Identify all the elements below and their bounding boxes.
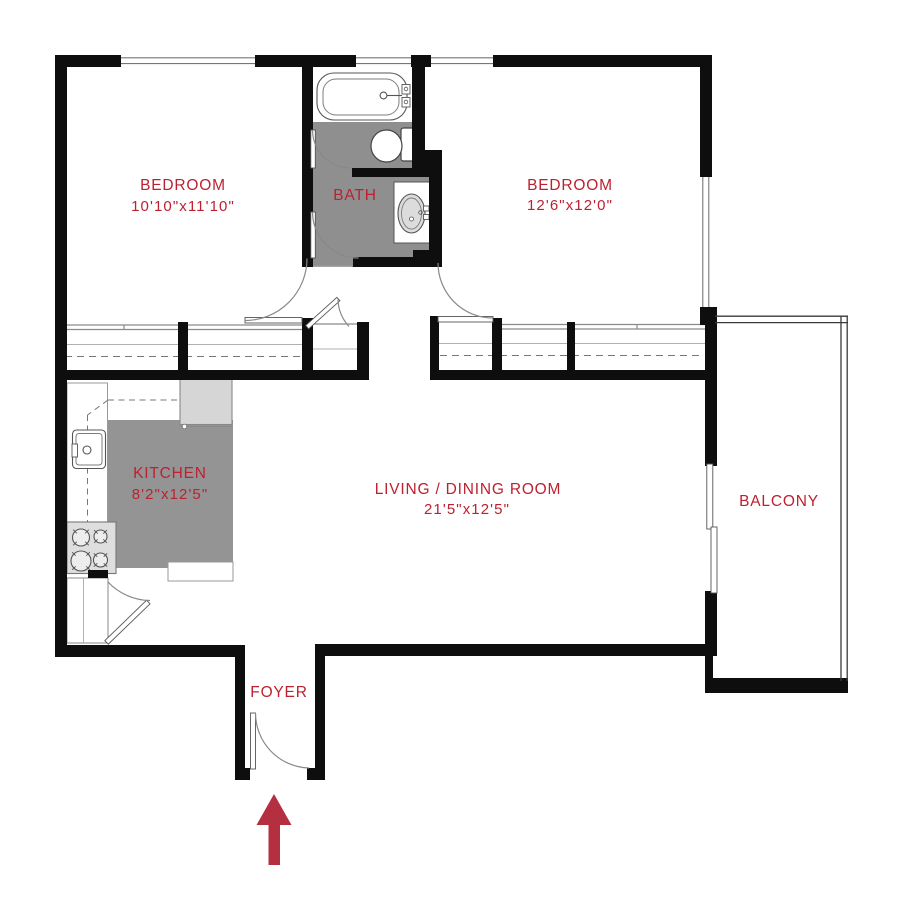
living-dining-label: LIVING / DINING ROOM: [375, 481, 562, 498]
bedroom1-dims: 10'10"x11'10": [131, 198, 235, 215]
refrigerator: [180, 378, 232, 429]
bedroom1-label: BEDROOM: [140, 177, 226, 194]
floor-plan-canvas: BEDROOM 10'10"x11'10" BEDROOM 12'6"x12'0…: [0, 0, 900, 900]
balcony-label: BALCONY: [739, 493, 819, 510]
living-dining-dims: 21'5"x12'5": [424, 501, 510, 518]
kitchen-dims: 8'2"x12'5": [132, 486, 209, 503]
toilet: [371, 128, 415, 162]
bedroom2-door: [438, 263, 493, 322]
bedroom2-dims: 12'6"x12'0": [527, 197, 613, 214]
foyer-label: FOYER: [250, 684, 307, 701]
bedroom1-door: [245, 259, 307, 324]
vanity-sink: [394, 182, 430, 243]
bathtub: [317, 73, 410, 120]
pantry-closet: [67, 578, 108, 643]
entry-arrow-icon: [257, 794, 292, 865]
entry-door: [251, 713, 310, 769]
floor-plan: BEDROOM 10'10"x11'10" BEDROOM 12'6"x12'0…: [0, 0, 900, 900]
bath-label: BATH: [333, 187, 376, 204]
pantry-door: [105, 582, 150, 644]
kitchen-sink: [72, 430, 106, 469]
stove: [67, 522, 116, 574]
kitchen-label: KITCHEN: [133, 465, 207, 482]
hall-linen-closet: [313, 324, 357, 349]
balcony-sliding-door: [707, 464, 717, 593]
walls: [55, 55, 848, 780]
kitchen-cabinet: [168, 562, 233, 581]
bedroom2-label: BEDROOM: [527, 177, 613, 194]
